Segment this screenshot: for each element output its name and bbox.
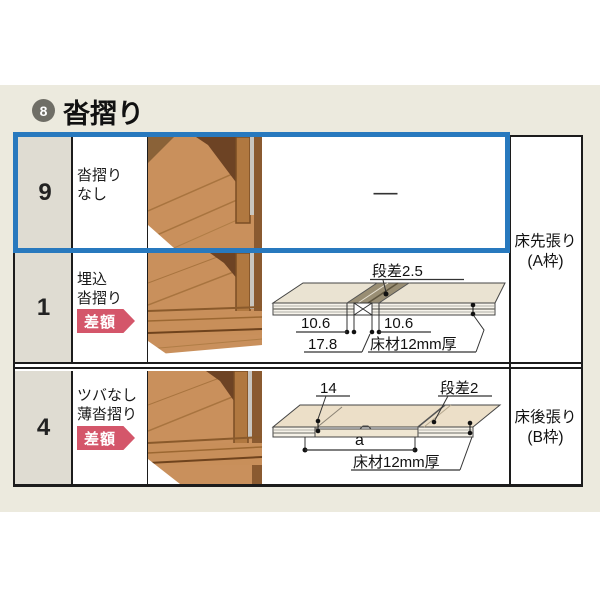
- section-title: 沓摺り: [63, 92, 144, 131]
- row4-label-line1: ツバなし: [77, 386, 137, 405]
- row4-price-difference-badge: 差額: [77, 426, 135, 450]
- row4-threshold-photo: [148, 371, 262, 484]
- row4-label-line2: 薄沓摺り: [77, 405, 137, 424]
- group-separator-line: [13, 367, 583, 369]
- row1-label-line1: 埋込: [77, 270, 122, 289]
- table-line: [509, 135, 583, 137]
- row1-label-line2: 沓摺り: [77, 289, 122, 308]
- dim-step-label: 段差2.5: [372, 263, 423, 280]
- dim-right-label: 10.6: [384, 315, 413, 332]
- section-number-badge: 8: [32, 99, 55, 122]
- material-label: 床材12mm厚: [353, 454, 440, 471]
- badge-text: 差額: [84, 311, 116, 332]
- frame-b-label: 床後張り (B枠): [510, 408, 581, 448]
- frame-b-line1: 床後張り: [510, 408, 581, 428]
- frame-b-line2: (B枠): [510, 428, 581, 448]
- step-label: 段差2: [440, 380, 478, 397]
- table-line: [13, 253, 15, 487]
- table-line: [71, 371, 73, 484]
- row4-option[interactable]: ツバなし 薄沓摺り: [77, 386, 137, 424]
- frame-a-line1: 床先張り: [510, 232, 581, 252]
- group-separator-line: [13, 362, 583, 364]
- row1-number-cell: 1: [15, 253, 72, 362]
- row1-option[interactable]: 埋込 沓摺り: [77, 270, 122, 308]
- row1-number: 1: [37, 294, 50, 322]
- table-line: [71, 253, 73, 362]
- dim-top-label: 14: [320, 380, 337, 397]
- page: 8 沓摺り 9 1 4 沓摺り なし —: [0, 0, 600, 600]
- row4-number-cell: 4: [15, 371, 72, 484]
- frame-a-label: 床先張り (A枠): [510, 232, 581, 272]
- dim-a-label: a: [355, 432, 364, 449]
- section-number: 8: [40, 103, 48, 119]
- material-label: 床材12mm厚: [370, 336, 457, 353]
- frame-a-line2: (A枠): [510, 252, 581, 272]
- row1-threshold-photo: [148, 253, 262, 362]
- dim-total-label: 17.8: [308, 336, 337, 353]
- row1-cross-section-diagram: 段差2.5 10.6 10.6 17.8 床材12mm厚: [268, 258, 508, 361]
- badge-text: 差額: [84, 428, 116, 449]
- row1-price-difference-badge: 差額: [77, 309, 135, 333]
- row4-number: 4: [37, 414, 50, 442]
- table-line: [581, 135, 583, 487]
- row4-cross-section-diagram: 14 段差2 a 床材12mm厚: [268, 375, 508, 485]
- dim-left-label: 10.6: [301, 315, 330, 332]
- selected-row-highlight[interactable]: [13, 132, 510, 253]
